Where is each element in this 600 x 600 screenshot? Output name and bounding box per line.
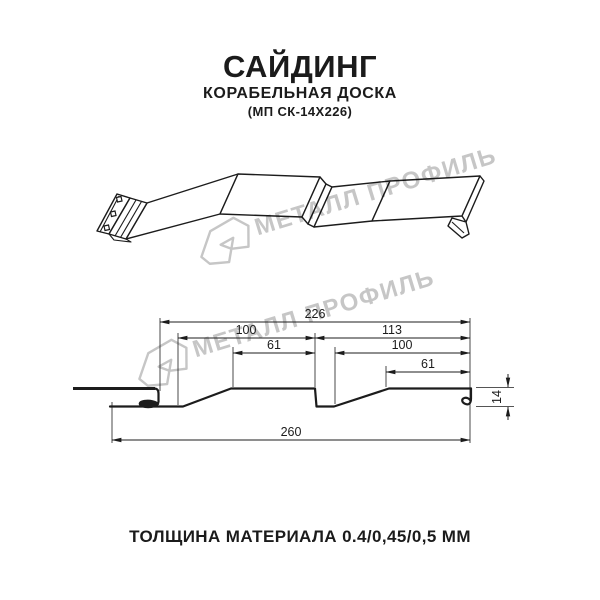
brand-logo-icon (131, 336, 195, 391)
dim-100-right: 100 (392, 338, 413, 352)
dim-260: 260 (281, 425, 302, 439)
brand-logo-icon (193, 214, 257, 269)
dim-61-right: 61 (421, 357, 435, 371)
dim-61-left: 61 (267, 338, 281, 352)
dim-226: 226 (305, 307, 326, 321)
dim-113: 113 (382, 323, 402, 337)
dim-14: 14 (490, 390, 504, 404)
dim-100-left: 100 (236, 323, 257, 337)
drawing-area: МЕТАЛЛ ПРОФИЛЬ МЕТАЛЛ ПРОФИЛЬ (0, 0, 600, 600)
product-diagram-page: САЙДИНГ КОРАБЕЛЬНАЯ ДОСКА (МП СК-14Х226)… (0, 0, 600, 600)
